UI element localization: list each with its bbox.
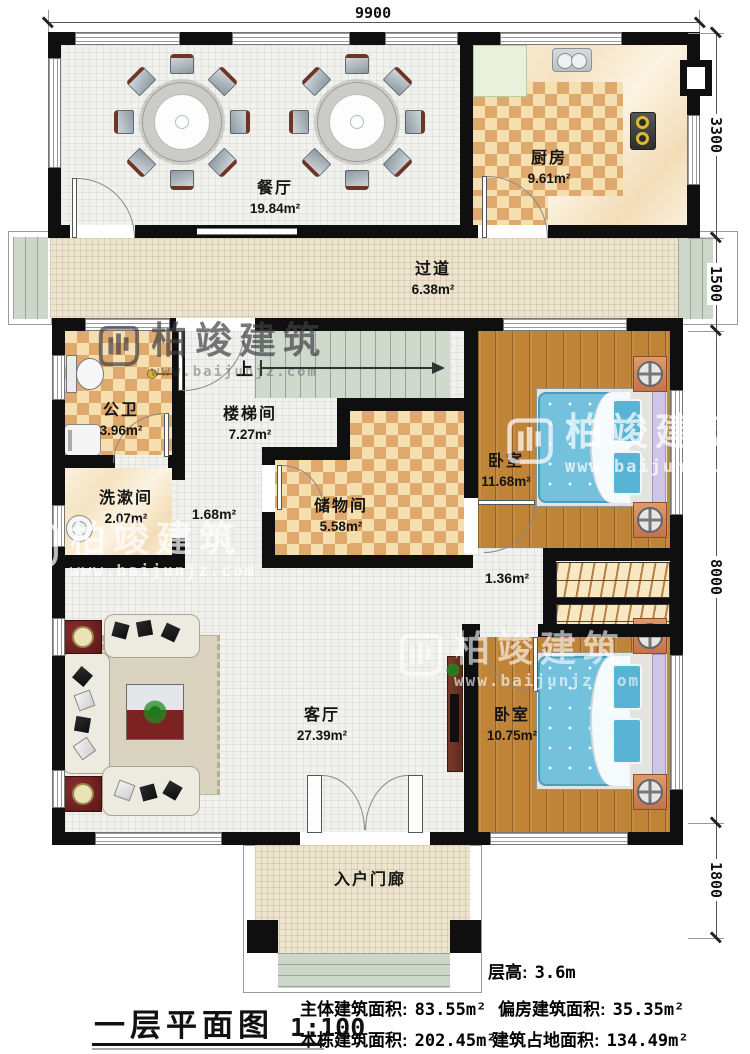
nightstand — [633, 774, 667, 810]
room-area: 7.27m² — [223, 426, 277, 444]
plan-title-text: 一层平面图 — [94, 1000, 274, 1045]
room-area: 6.38m² — [412, 281, 455, 299]
window — [503, 318, 627, 331]
bed-pillow — [612, 399, 642, 443]
porch-pillar — [450, 920, 481, 953]
floor-drain — [147, 369, 157, 379]
wall — [262, 447, 350, 460]
chair — [170, 54, 194, 74]
floor-plan-canvas: 9900 3300 1500 8000 1800 — [0, 0, 750, 1054]
dimension-top-value: 9900 — [352, 4, 394, 22]
entry-door-leaf — [307, 775, 322, 833]
window — [95, 832, 222, 845]
chair — [345, 170, 369, 190]
side-table — [64, 620, 102, 654]
washbasin — [66, 515, 93, 542]
chair — [230, 110, 250, 134]
chair — [289, 110, 309, 134]
stat-value: 134.49m² — [607, 1031, 689, 1051]
window — [52, 618, 65, 656]
room-area: 3.96m² — [100, 422, 143, 440]
room-label-dining: 餐厅 19.84m² — [250, 179, 300, 217]
bed-headboard — [652, 654, 666, 788]
floor-height-value: 3.6m — [535, 963, 576, 983]
kitchen-counter — [473, 45, 527, 97]
wall — [52, 555, 185, 568]
dimension-line-top — [48, 22, 700, 23]
dimension-right-3300: 3300 — [707, 114, 725, 156]
porch-floor — [255, 845, 470, 953]
side-table — [64, 776, 102, 812]
window — [385, 32, 458, 45]
chair — [170, 170, 194, 190]
porch-pillar — [247, 920, 278, 953]
window — [85, 318, 170, 331]
room-label-kitchen: 厨房 9.61m² — [528, 149, 571, 187]
bed-headboard — [652, 390, 666, 505]
window — [670, 390, 683, 515]
room-area: 27.39m² — [297, 727, 347, 745]
stairs-direction-start — [260, 360, 262, 376]
corridor-floor — [50, 238, 678, 318]
room-name: 客厅 — [297, 706, 347, 727]
stat-label: 建筑占地面积: — [492, 1031, 600, 1050]
room-name: 洗漱间 — [99, 489, 153, 510]
area-label-mid-hall: 1.68m² — [192, 506, 236, 522]
wall-kitchen-divider — [460, 45, 473, 225]
room-label-living: 客厅 27.39m² — [297, 706, 347, 744]
dimension-line-right — [716, 33, 717, 938]
room-area: 19.84m² — [250, 200, 300, 218]
entry-door-leaf — [408, 775, 423, 833]
room-name: 卧室 — [481, 452, 531, 473]
wall — [337, 398, 465, 411]
room-name: 公卫 — [100, 401, 143, 422]
title-underline — [92, 1048, 324, 1050]
room-name: 储物间 — [314, 497, 368, 518]
room-label-bathroom: 公卫 3.96m² — [100, 401, 143, 439]
stat-label: 偏房建筑面积: — [498, 1000, 606, 1019]
room-area: 10.75m² — [487, 727, 537, 745]
door-opening — [262, 465, 275, 512]
title-underline — [92, 1043, 324, 1046]
stat-annex-area: 偏房建筑面积:35.35m² — [498, 995, 684, 1020]
room-label-washroom: 洗漱间 2.07m² — [99, 489, 153, 527]
room-label-porch: 入户门廊 — [334, 871, 406, 892]
cushion — [73, 715, 93, 735]
window — [52, 770, 65, 808]
wall — [538, 624, 683, 637]
wall — [556, 598, 670, 604]
room-name: 楼梯间 — [223, 405, 277, 426]
room-area: 9.61m² — [528, 170, 571, 188]
kitchen-sink — [552, 48, 592, 72]
wall — [543, 548, 683, 561]
area-label-bedroom-hall: 1.36m² — [485, 570, 529, 586]
tv-icon — [450, 694, 459, 742]
room-label-storage: 储物间 5.58m² — [314, 497, 368, 535]
entry-door-opening — [300, 832, 430, 845]
stat-value: 202.45m² — [415, 1031, 497, 1051]
nightstand — [633, 356, 667, 392]
washing-machine — [64, 424, 101, 456]
room-area: 2.07m² — [99, 510, 153, 528]
plan-scale: 1:100 — [290, 1013, 365, 1042]
stat-value: 83.55m² — [415, 1000, 487, 1020]
window — [52, 505, 65, 547]
chair — [114, 110, 134, 134]
plan-title: 一层平面图 1:100 — [94, 1000, 365, 1045]
wall — [52, 455, 115, 468]
drain-line — [156, 373, 172, 375]
stove-burner — [636, 132, 649, 145]
wall — [462, 624, 480, 637]
plant-icon — [445, 662, 461, 678]
stove-burner — [636, 116, 649, 129]
floor-height-label: 层高: — [488, 963, 528, 982]
toilet-bowl — [76, 358, 104, 390]
wardrobe — [556, 562, 670, 598]
dimension-right-1800: 1800 — [707, 859, 725, 901]
stair-treads — [255, 331, 450, 398]
window — [232, 32, 350, 45]
window — [490, 832, 628, 845]
dimension-right-8000: 8000 — [707, 556, 725, 598]
stat-value: 35.35m² — [613, 1000, 685, 1020]
nightstand — [633, 502, 667, 538]
corridor-steps-left — [13, 237, 48, 319]
room-name: 过道 — [412, 260, 455, 281]
wall — [48, 225, 700, 238]
room-label-bedroom-top: 卧室 11.68m² — [481, 452, 531, 490]
window — [48, 58, 61, 168]
room-area: 11.68m² — [481, 473, 531, 491]
dining-table-center — [350, 115, 364, 129]
room-area: 5.58m² — [314, 518, 368, 536]
window — [687, 115, 700, 185]
bed-pillow — [612, 718, 642, 764]
chimney — [680, 60, 712, 96]
porch-steps — [278, 953, 450, 988]
stairs-direction-line — [260, 367, 432, 369]
window — [500, 32, 622, 45]
room-label-stairwell: 楼梯间 7.27m² — [223, 405, 277, 443]
stat-footprint-area: 建筑占地面积:134.49m² — [492, 1026, 689, 1051]
chair — [405, 110, 425, 134]
sliding-opening — [197, 228, 297, 235]
wall — [464, 637, 478, 832]
bed-pillow — [612, 664, 642, 710]
window — [75, 32, 180, 45]
stairs-direction-arrow — [432, 362, 445, 374]
room-label-corridor: 过道 6.38m² — [412, 260, 455, 298]
dimension-right-1500: 1500 — [707, 263, 725, 305]
floor-height: 层高:3.6m — [488, 958, 576, 983]
room-name: 入户门廊 — [334, 871, 406, 892]
dining-table-center — [175, 115, 189, 129]
stairs-up-label: 上 — [236, 355, 253, 380]
cushion — [135, 619, 155, 639]
room-name: 卧室 — [487, 706, 537, 727]
door-opening — [176, 318, 255, 331]
plant-icon — [141, 698, 169, 726]
room-name: 厨房 — [528, 149, 571, 170]
room-name: 餐厅 — [250, 179, 300, 200]
room-label-bedroom-bottom: 卧室 10.75m² — [487, 706, 537, 744]
chair — [345, 54, 369, 74]
wall — [168, 455, 185, 468]
bed-pillow — [612, 451, 642, 495]
wall — [262, 555, 473, 568]
window — [52, 355, 65, 400]
door-opening — [464, 498, 478, 553]
window — [670, 655, 683, 790]
